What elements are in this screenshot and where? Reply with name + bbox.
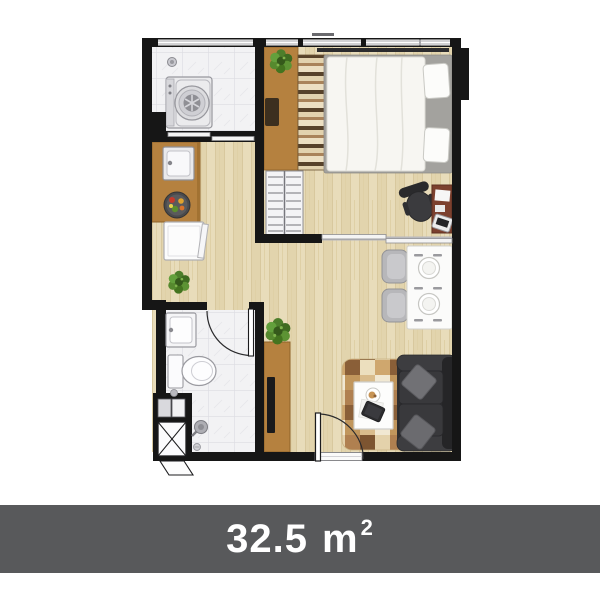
balcony-divider-mark xyxy=(312,33,334,36)
wash-basin-icon xyxy=(166,313,196,347)
fruit-plate-icon xyxy=(164,192,190,218)
double-bed-icon xyxy=(324,55,452,173)
curtain-rail-icon xyxy=(317,48,449,52)
wardrobe-rail-icon xyxy=(266,171,303,236)
wall-jog xyxy=(452,48,469,100)
floor-drain-icon xyxy=(168,58,177,67)
area-unit: m xyxy=(322,505,359,573)
tv-console-icon xyxy=(264,342,290,452)
louver-flap-icon xyxy=(160,461,193,475)
area-banner: 32.5m2 xyxy=(0,505,600,573)
area-exponent: 2 xyxy=(361,517,374,539)
washing-machine-icon xyxy=(166,77,212,128)
floor-plan-page: 32.5m2 xyxy=(0,0,600,600)
area-value: 32.5 xyxy=(226,505,308,573)
dining-table-icon xyxy=(407,246,452,329)
kitchen-sink-icon xyxy=(163,147,194,180)
dining-chair-icon xyxy=(382,250,408,283)
pillow-icon xyxy=(423,127,450,162)
pillow-icon xyxy=(423,63,450,99)
duct-x-icon xyxy=(158,399,186,456)
coffee-table-icon xyxy=(354,382,393,429)
floor-drain-icon xyxy=(194,444,201,451)
window-icon xyxy=(158,40,253,46)
area-label: 32.5m2 xyxy=(226,505,374,573)
folded-clothes-icon xyxy=(265,98,279,126)
dining-chair-icon xyxy=(382,289,408,322)
refrigerator-icon xyxy=(164,222,208,260)
tv-icon xyxy=(267,377,275,433)
sofa-icon xyxy=(397,355,458,451)
